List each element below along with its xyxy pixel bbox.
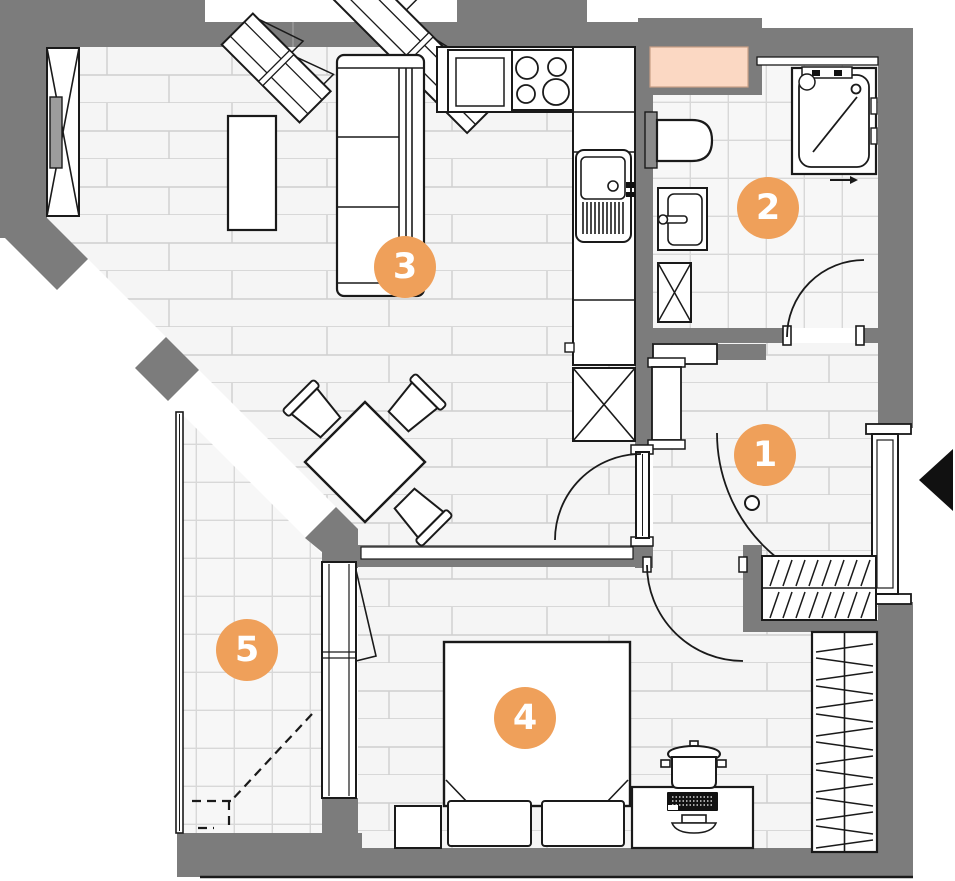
bedroom-wall-lining xyxy=(361,547,633,559)
room-marker-hallway[interactable]: 1 xyxy=(734,424,796,486)
bathroom-sink xyxy=(658,188,707,250)
fridge xyxy=(573,368,635,441)
pillow xyxy=(448,801,531,846)
shower-handle xyxy=(871,128,877,144)
shower xyxy=(792,67,877,184)
balcony-glazing xyxy=(176,412,183,833)
tv xyxy=(50,97,62,168)
wardrobe xyxy=(812,632,877,852)
mouse-tray xyxy=(682,815,706,823)
vent-shaft xyxy=(650,47,748,87)
bathroom-cabinet xyxy=(658,263,691,322)
desk xyxy=(632,787,753,848)
oven xyxy=(448,50,512,112)
room-marker-bedroom[interactable]: 4 xyxy=(494,687,556,749)
shower-handle xyxy=(871,98,877,114)
floor-point xyxy=(745,496,759,510)
hallway-shelf-gray xyxy=(717,344,766,360)
kitchen-sink xyxy=(576,150,635,242)
counter-handle xyxy=(565,343,574,352)
shoe-cabinet xyxy=(762,556,876,620)
room-marker-bathroom[interactable]: 2 xyxy=(737,177,799,239)
hallway-cabinet xyxy=(648,358,685,449)
floor-plan-drawing xyxy=(0,0,955,881)
shower-drain xyxy=(852,85,861,94)
room-marker-living-room[interactable]: 3 xyxy=(374,236,436,298)
room-marker-balcony[interactable]: 5 xyxy=(216,619,278,681)
bathroom-top-lining xyxy=(757,57,878,65)
floor-plan: 1 2 3 4 5 xyxy=(0,0,955,881)
nightstand xyxy=(395,806,441,848)
coffee-table xyxy=(228,116,276,230)
pillow xyxy=(542,801,624,846)
tv-stand xyxy=(47,48,79,216)
cooktop xyxy=(512,50,573,110)
